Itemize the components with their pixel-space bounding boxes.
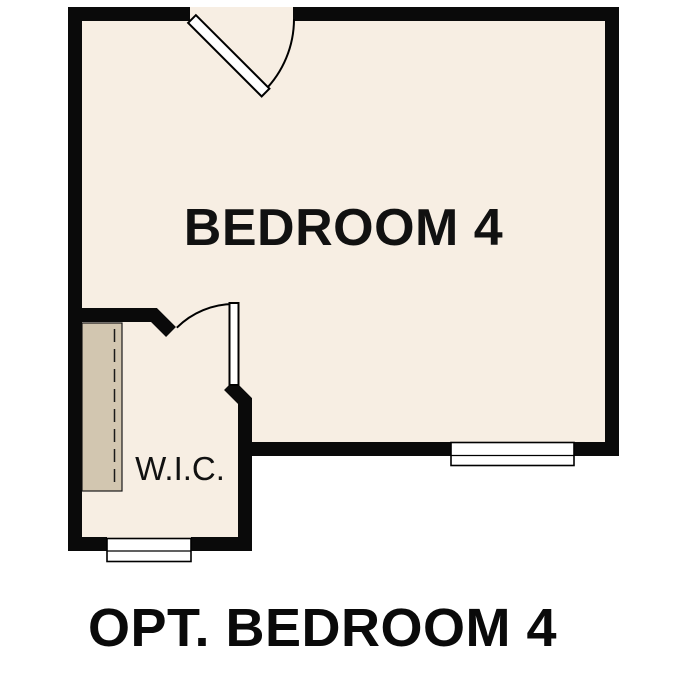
plan-caption: OPT. BEDROOM 4 (0, 601, 645, 655)
closet-label: W.I.C. (100, 452, 260, 485)
closet-door-leaf (230, 303, 239, 385)
wall-top-right-segment (293, 7, 619, 21)
window-closet (107, 539, 191, 562)
window-bedroom (451, 443, 574, 466)
wall-closet-bottom-left-segment (68, 537, 107, 551)
wall-bedroom-bottom-left-segment (252, 442, 451, 456)
wall-top-left-segment (68, 7, 190, 21)
wall-bedroom-bottom-right-segment (574, 442, 619, 456)
floorplan-drawing (0, 0, 687, 580)
wall-left (68, 7, 82, 551)
floorplan-canvas: BEDROOM 4 W.I.C. OPT. BEDROOM 4 (0, 0, 687, 687)
room-label: BEDROOM 4 (0, 202, 687, 254)
